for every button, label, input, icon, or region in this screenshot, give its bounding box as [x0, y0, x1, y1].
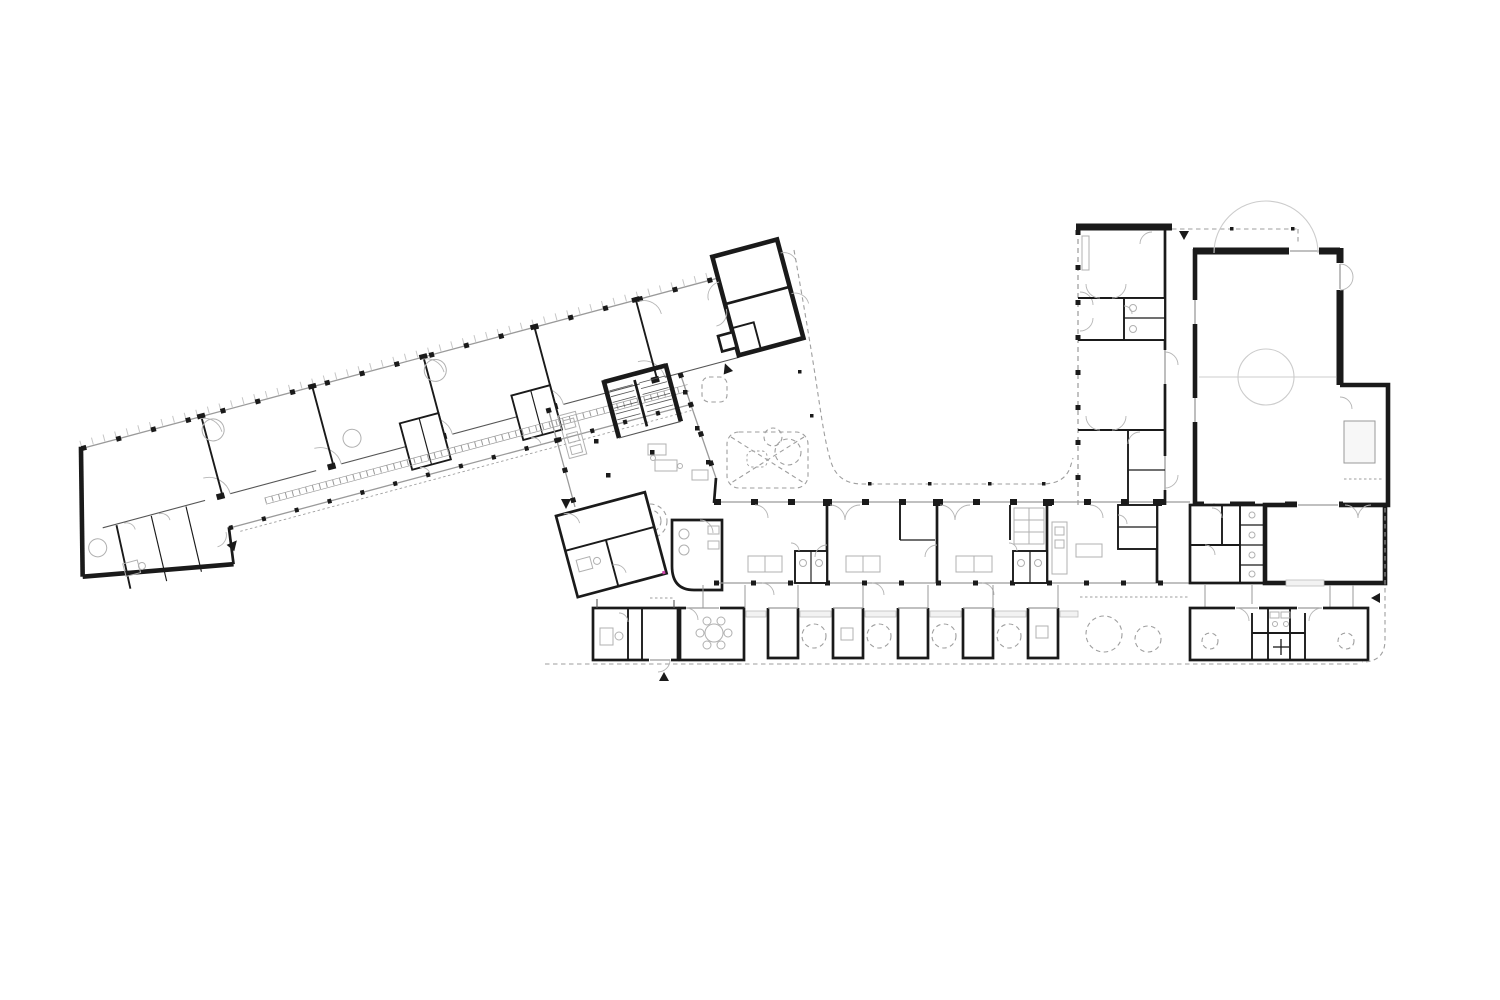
pavilion-round-table: [680, 604, 744, 660]
floor-plan-drawing: [0, 0, 1500, 1000]
equipment-annex: [1340, 385, 1388, 505]
south-wing-kitchenette: [1014, 508, 1044, 544]
stair-block: [603, 364, 680, 439]
north-wing-rooms: [1078, 232, 1165, 505]
central-entrance-hall: [548, 364, 727, 598]
se-pavilion: [1190, 604, 1368, 660]
staff-suite: [556, 492, 667, 597]
entrance-arrow-hall-west: [561, 499, 571, 509]
entrance-arrow-south: [659, 672, 669, 681]
pavilion-entry-suite: [593, 599, 678, 672]
west-wing-wc-cells: [400, 383, 564, 477]
north-wing-east-wall: [1165, 230, 1178, 505]
tree-marking: [764, 428, 782, 446]
hall-wc-room: [672, 520, 722, 590]
entrance-arrow-hall-east: [720, 362, 733, 375]
canopy-dashed-line: [794, 250, 1073, 484]
canopy-columns: [798, 370, 1046, 486]
sports-hall-walls: [1190, 245, 1353, 517]
hall-furniture: [648, 444, 708, 480]
south-wing-south-wall: [714, 583, 1190, 595]
south-wing-wc-pairs: [791, 543, 1047, 583]
sandbox-marking: [727, 432, 808, 488]
north-wing-site-dashes: [1172, 227, 1298, 250]
entrance-arrow-west-wing: [227, 537, 241, 551]
shrub-markings: [802, 616, 1161, 652]
south-wing-tables: [748, 556, 992, 572]
sports-hall: [1190, 201, 1388, 555]
north-wing-west-facade: [1078, 230, 1093, 505]
planter-marking: [702, 377, 727, 402]
entrance-arrow-east: [1371, 593, 1380, 603]
floor-plan-page: [0, 0, 1500, 1000]
kitchen-wc-cells: [1118, 505, 1157, 549]
south-classroom-wing: [714, 499, 1190, 595]
se-block-small-rooms: [1190, 505, 1265, 583]
entrance-arrow-north: [1179, 231, 1189, 240]
south-wing-door-arcs: [755, 505, 1103, 557]
west-wing-end-block: [698, 236, 817, 359]
tree-marking: [775, 439, 801, 465]
kitchen-island: [1052, 522, 1102, 574]
se-block-large-room: [1265, 499, 1385, 588]
entrance-arrows: [227, 362, 733, 552]
north-room-wing: [1076, 227, 1298, 505]
west-wing-end-extension: [50, 415, 238, 603]
